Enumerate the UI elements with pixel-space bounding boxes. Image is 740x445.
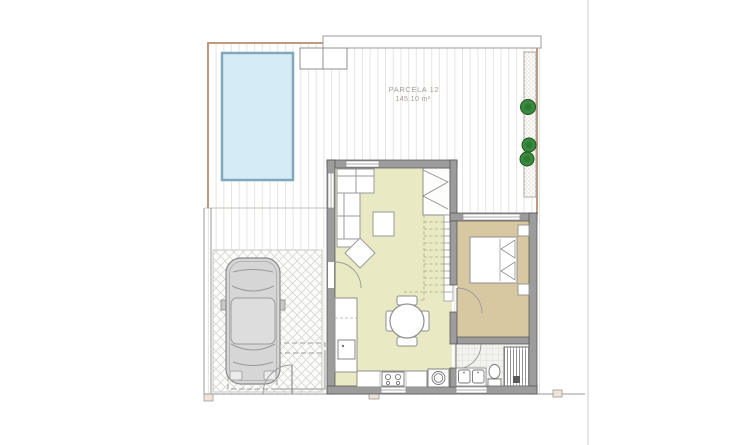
plant-icon <box>521 100 536 115</box>
shower <box>504 347 529 386</box>
plant-icon <box>522 138 536 152</box>
nightstand <box>518 225 529 236</box>
washing-machine <box>428 369 449 387</box>
floor-plan-drawing: PARCELA 12 145.10 m² <box>0 0 740 445</box>
plant-icon <box>520 152 534 166</box>
outdoor-storage-boxes <box>300 48 347 69</box>
toilet <box>488 365 501 387</box>
fridge <box>338 340 355 359</box>
car-icon <box>221 258 285 384</box>
parcel-area-label: 145.10 m² <box>395 96 430 103</box>
stove <box>382 372 404 386</box>
planter-strip <box>524 52 536 197</box>
floor-plan-page: PARCELA 12 145.10 m² <box>0 0 740 445</box>
coffee-table <box>373 212 394 236</box>
parcel-label: PARCELA 12 <box>389 85 439 94</box>
swimming-pool <box>222 53 293 180</box>
vanity-double-sink <box>456 368 486 386</box>
nightstand <box>518 284 529 295</box>
bed <box>470 237 517 283</box>
